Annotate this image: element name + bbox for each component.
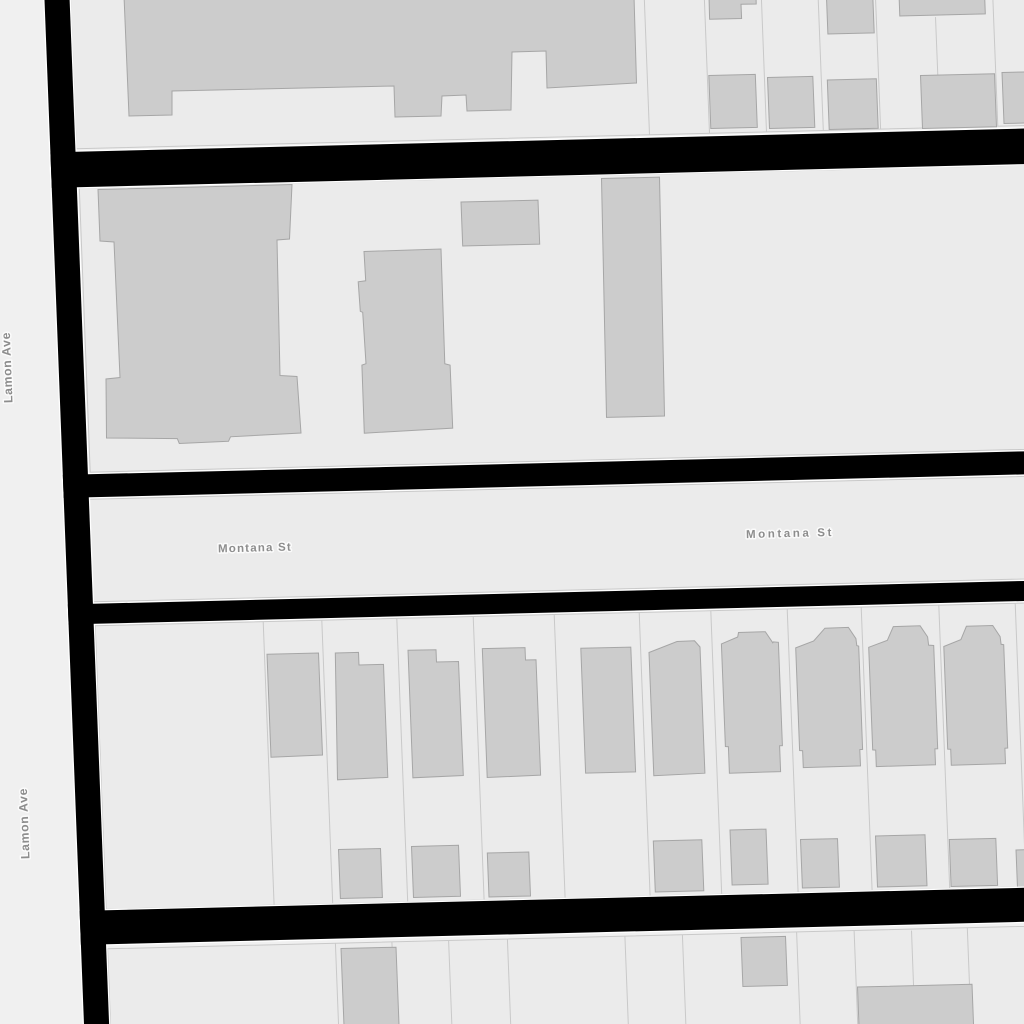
svg-text:Lamon Ave: Lamon Ave	[0, 332, 16, 404]
svg-text:Montana St: Montana St	[218, 542, 292, 556]
svg-text:Lamon Ave: Lamon Ave	[16, 788, 33, 860]
svg-text:Montana St: Montana St	[746, 527, 834, 541]
